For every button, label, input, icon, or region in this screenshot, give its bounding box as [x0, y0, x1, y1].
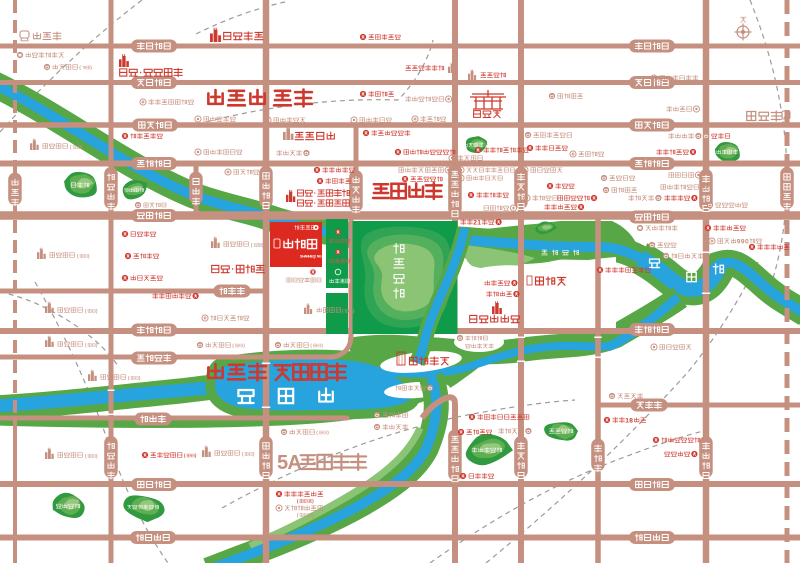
- svg-text:0: 0: [745, 238, 749, 245]
- svg-text:I: I: [315, 255, 316, 259]
- svg-text:G: G: [319, 255, 322, 259]
- svg-text:8: 8: [629, 417, 633, 424]
- svg-text:1: 1: [477, 219, 481, 226]
